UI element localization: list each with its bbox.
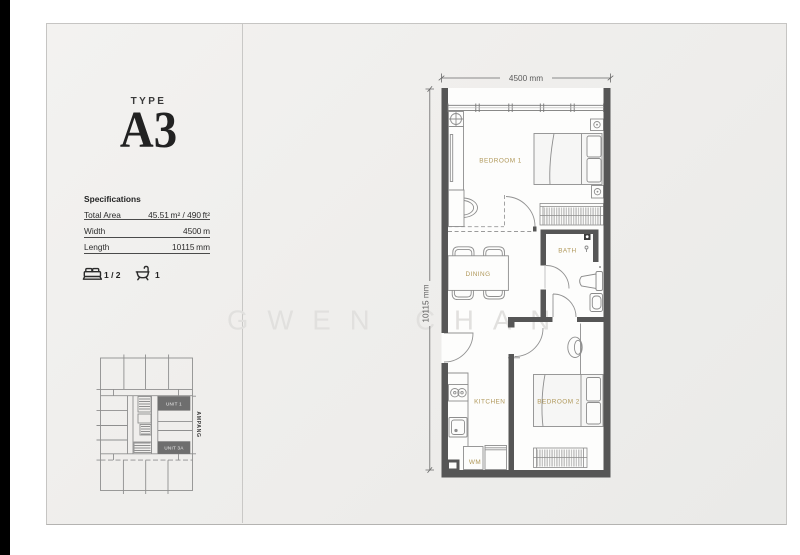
svg-text:WM: WM bbox=[469, 459, 481, 466]
svg-text:AMPANG: AMPANG bbox=[195, 411, 201, 437]
svg-text:10115 mm: 10115 mm bbox=[422, 284, 431, 322]
svg-text:DINING: DINING bbox=[465, 271, 490, 278]
svg-text:KITCHEN: KITCHEN bbox=[474, 398, 505, 405]
svg-text:BEDROOM 1: BEDROOM 1 bbox=[479, 157, 521, 164]
svg-text:UNIT 3A: UNIT 3A bbox=[164, 446, 183, 451]
svg-text:UNIT 1: UNIT 1 bbox=[166, 402, 182, 407]
svg-text:BATH: BATH bbox=[558, 247, 576, 254]
svg-text:4500 mm: 4500 mm bbox=[509, 74, 543, 83]
svg-text:BEDROOM 2: BEDROOM 2 bbox=[537, 399, 579, 406]
